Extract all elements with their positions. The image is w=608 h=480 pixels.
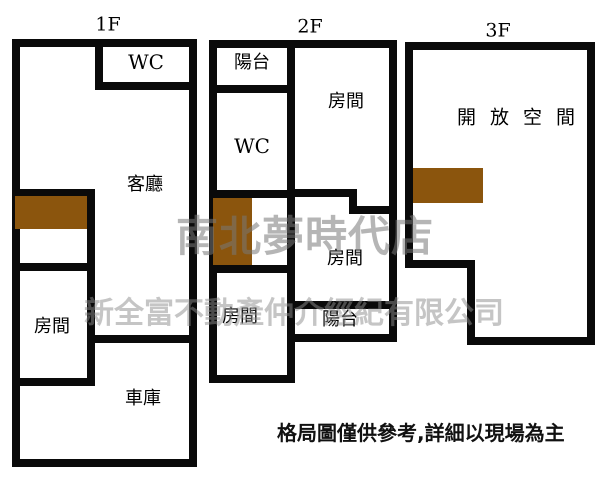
floor-label-1f: 1F <box>95 16 120 35</box>
1f-wc-wall-bottom <box>95 82 197 90</box>
disclaimer-text: 格局圖僅供參考,詳細以現場為主 <box>277 417 565 446</box>
2f-bedroom-mid-wall-bottom <box>287 301 397 309</box>
1f-bedroom-wall-bottom <box>12 378 95 386</box>
1f-stair-wall-bottom <box>12 263 91 271</box>
2f-stair-wall-bottom <box>209 265 295 273</box>
3f-room-label-open-space: 開放空間 <box>457 109 589 128</box>
floor-label-2f: 2F <box>297 18 322 37</box>
2f-wall-right <box>389 40 397 342</box>
1f-wall-left <box>12 39 20 467</box>
3f-notch-wall-vertical <box>467 260 475 345</box>
1f-column-wall-right <box>87 189 95 386</box>
3f-wall-bottom <box>467 337 595 345</box>
3f-notch-wall-horizontal <box>405 260 475 268</box>
floorplan-diagram: 1F WC 客廳 房間 車庫 2F 陽台 WC 房間 房間 房間 陽台 3F <box>0 0 608 480</box>
2f-room-label-bedroom-top: 房間 <box>328 93 364 111</box>
1f-wall-top <box>12 39 197 47</box>
2f-room-label-balcony-top: 陽台 <box>234 54 270 72</box>
3f-wall-left <box>405 42 413 268</box>
1f-wall-right <box>189 39 197 467</box>
1f-room-label-wc: WC <box>128 52 164 72</box>
2f-room-label-bedroom-bottom: 房間 <box>222 308 258 326</box>
2f-room-label-wc: WC <box>234 136 270 156</box>
3f-wall-right <box>587 42 595 345</box>
2f-bedroom-top-wall-bottom-right <box>349 206 397 214</box>
1f-wall-bottom <box>12 459 197 467</box>
2f-bedroom-top-wall-bottom-left <box>287 189 357 197</box>
1f-stair-wall-top <box>12 189 95 196</box>
1f-room-label-living: 客廳 <box>127 176 163 194</box>
1f-stairs-block <box>15 196 87 229</box>
1f-garage-wall-top <box>87 335 197 343</box>
2f-stairs-block <box>213 198 252 265</box>
2f-room-label-bedroom-mid: 房間 <box>327 250 363 268</box>
2f-wc-wall-bottom <box>209 190 295 198</box>
floor-label-3f: 3F <box>485 22 510 41</box>
2f-wall-top <box>209 40 397 48</box>
1f-room-label-bedroom: 房間 <box>34 318 70 336</box>
2f-column-wall-bottom <box>209 375 295 383</box>
1f-room-label-garage: 車庫 <box>125 390 161 408</box>
2f-balcony-top-wall-bottom <box>209 85 295 93</box>
2f-room-label-balcony-bottom: 陽台 <box>322 311 358 329</box>
3f-stairs-block <box>413 168 483 203</box>
3f-wall-top <box>405 42 595 50</box>
2f-balcony-bottom-wall-bottom <box>287 334 397 342</box>
